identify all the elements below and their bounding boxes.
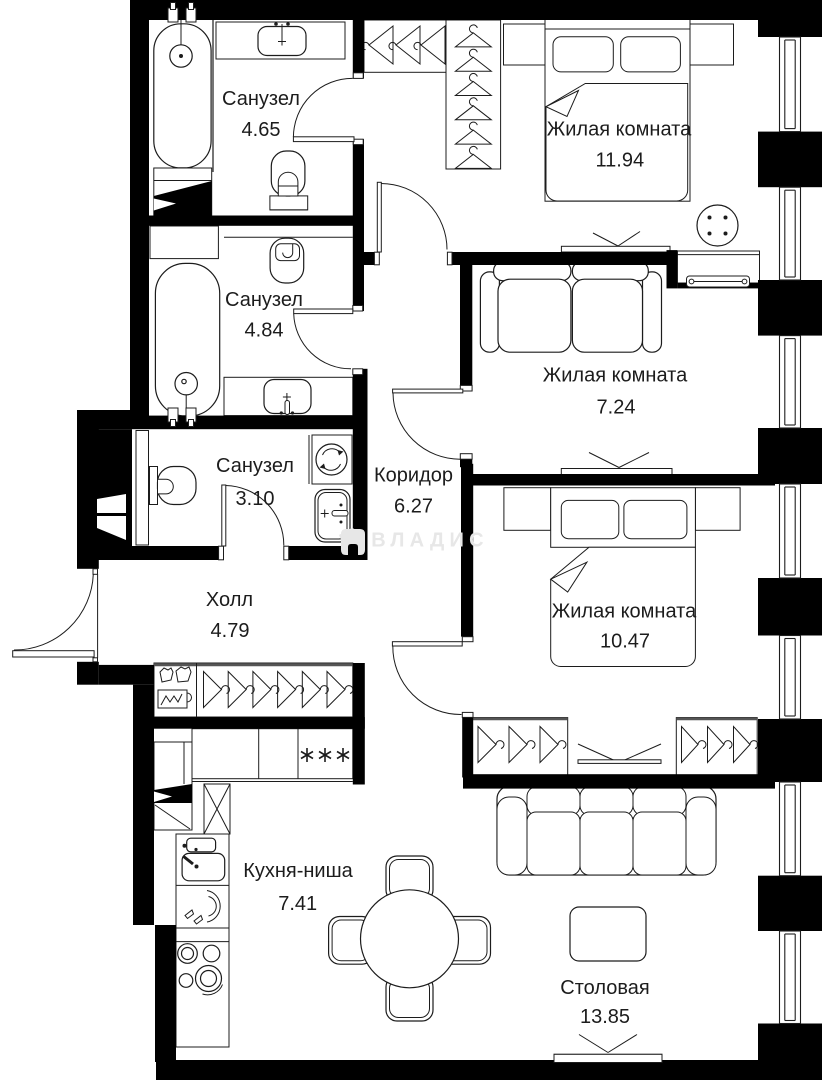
svg-text:Жилая комната: Жилая комната xyxy=(552,601,697,623)
svg-text:7.41: 7.41 xyxy=(278,893,317,915)
svg-text:Санузел: Санузел xyxy=(225,289,303,311)
svg-text:Столовая: Столовая xyxy=(560,977,649,999)
svg-text:6.27: 6.27 xyxy=(394,496,433,518)
svg-text:Коридор: Коридор xyxy=(374,465,453,487)
svg-text:Жилая комната: Жилая комната xyxy=(543,365,688,387)
svg-text:7.24: 7.24 xyxy=(597,397,636,419)
svg-text:10.47: 10.47 xyxy=(600,631,650,653)
svg-text:Санузел: Санузел xyxy=(222,88,300,110)
svg-text:Кухня-ниша: Кухня-ниша xyxy=(243,860,353,882)
svg-text:ВЛАДИС: ВЛАДИС xyxy=(371,530,488,552)
svg-text:11.94: 11.94 xyxy=(596,149,645,171)
svg-text:4.79: 4.79 xyxy=(211,620,250,642)
svg-text:13.85: 13.85 xyxy=(580,1006,630,1028)
svg-text:4.65: 4.65 xyxy=(242,119,281,141)
svg-text:Жилая комната: Жилая комната xyxy=(547,118,692,140)
svg-text:3.10: 3.10 xyxy=(236,488,275,510)
svg-text:Холл: Холл xyxy=(206,589,253,611)
svg-text:Санузел: Санузел xyxy=(216,455,294,477)
svg-text:4.84: 4.84 xyxy=(245,320,284,342)
